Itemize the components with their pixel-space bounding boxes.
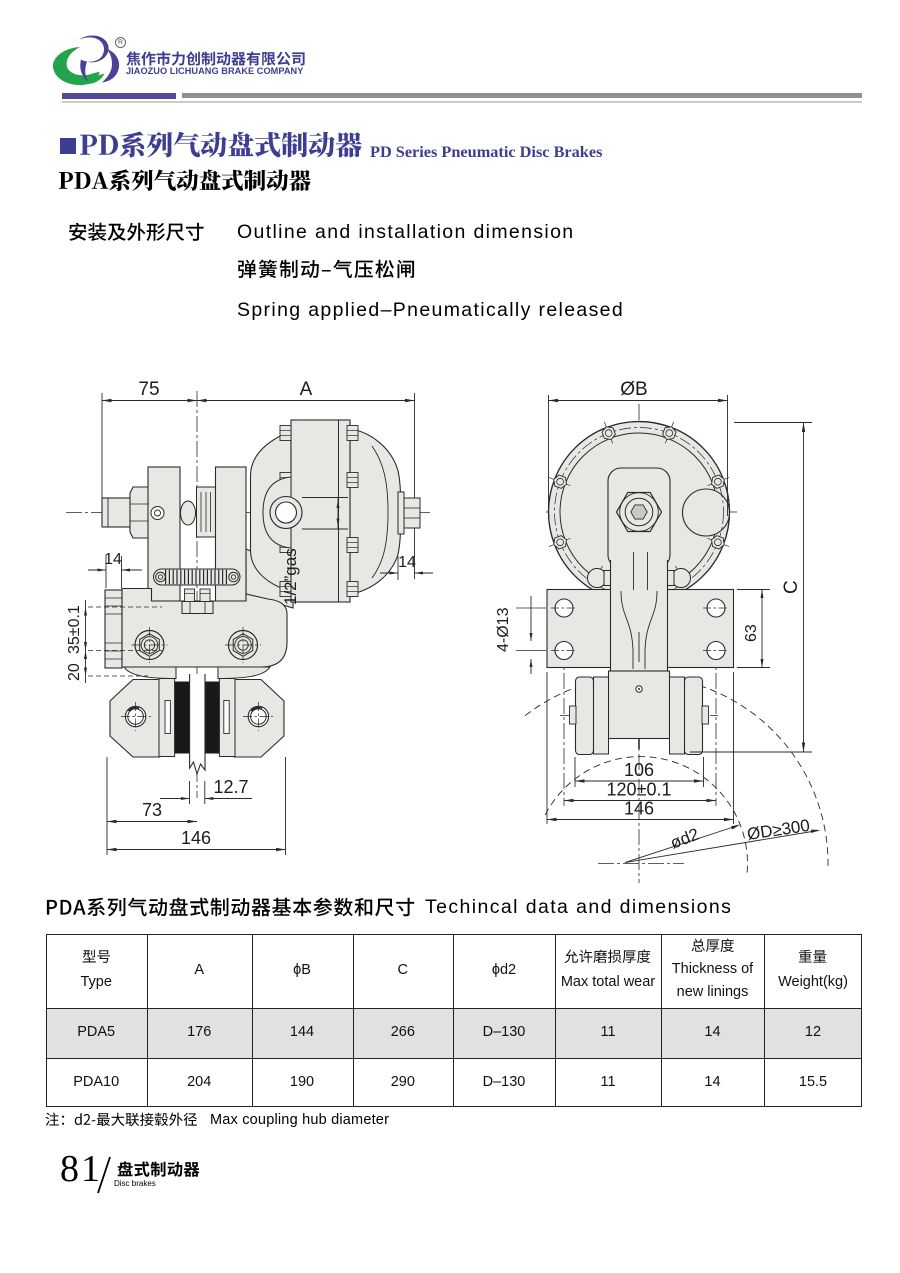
svg-text:75: 75: [138, 380, 159, 400]
svg-text:C: C: [781, 580, 802, 594]
svg-text:20: 20: [66, 663, 83, 681]
svg-text:106: 106: [624, 760, 654, 780]
svg-text:120±0.1: 120±0.1: [607, 780, 672, 800]
svg-text:14: 14: [104, 551, 122, 568]
svg-text:A: A: [300, 380, 313, 400]
svg-text:ød2: ød2: [668, 824, 702, 852]
svg-text:146: 146: [624, 799, 654, 819]
svg-text:ØD≥300: ØD≥300: [746, 816, 811, 844]
svg-text:63: 63: [743, 624, 760, 642]
svg-text:4-Ø13: 4-Ø13: [495, 607, 512, 652]
svg-text:12.7: 12.7: [213, 777, 248, 797]
svg-text:ØB: ØB: [620, 380, 647, 400]
svg-text:14: 14: [398, 554, 416, 571]
svg-text:35±0.1: 35±0.1: [66, 605, 83, 654]
svg-text:73: 73: [142, 800, 162, 820]
svg-text:146: 146: [181, 828, 211, 848]
svg-text:1/2”gas: 1/2”gas: [281, 548, 300, 605]
